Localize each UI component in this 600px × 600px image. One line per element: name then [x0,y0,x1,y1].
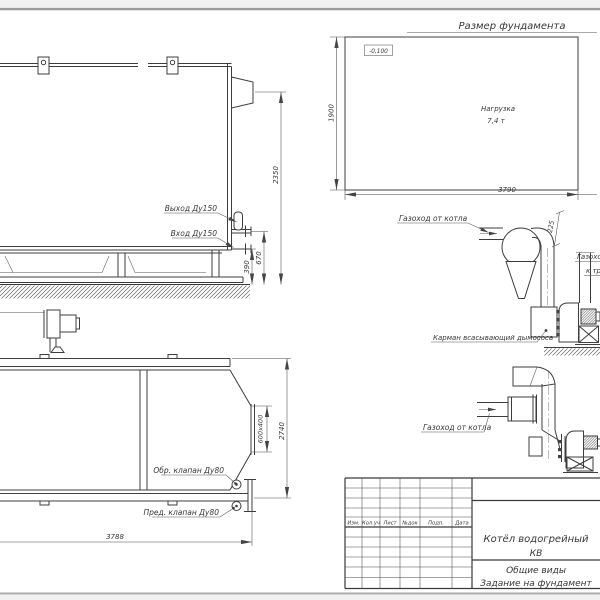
title-block: Изм. Кол.уч Лист №док Подп. Дата Котёл в… [345,478,600,589]
cyclone-volute [502,228,540,266]
fan-scroll [559,303,579,342]
dim-225: 225 [546,220,556,234]
col-koluch: Кол.уч [362,521,380,527]
dim-3788: 3788 [106,533,124,541]
water-connections [232,212,252,255]
duct-from-boiler-label: Газоход от котла [399,214,468,223]
support-frame [0,250,243,283]
lower-transition-box [508,395,537,424]
svg-text:-0,100: -0,100 [369,49,388,55]
dim-670: 670 [255,251,263,265]
doc-type-line1: Общие виды [506,566,566,576]
col-izm: Изм. [347,521,359,527]
motor-frame [579,326,599,343]
dim-3790: 3790 [498,186,516,194]
foundation-title: Размер фундамента [459,21,566,32]
lower-fan-unit [529,430,600,473]
boiler-drawing-svg: Выход Ду150 Вход Ду150 390 670 2350 Разм… [0,0,600,600]
ground [0,285,250,299]
plan-view-labels: Обр. клапан Ду80 Пред. клапан Ду80 [143,466,236,517]
motor [581,309,596,324]
outlet-valve [234,212,243,230]
foundation-plan: Размер фундамента -0,100 Нагрузка 7,4 т … [328,21,598,200]
flue-outlet-branch [232,77,254,108]
suction-pocket-label: Карман всасывающий дымососа [433,334,553,342]
lifting-lug [38,57,49,74]
boiler-body [0,64,253,251]
title-block-headers: Изм. Кол.уч Лист №док Подп. Дата [347,521,468,527]
load-value: 7,4 т [487,117,505,125]
col-podp: Подп. [428,521,444,527]
foundation-outline [345,37,578,190]
col-ndok: №док [401,521,418,527]
outlet-label: Выход Ду150 [165,204,218,213]
product-name-line1: Котёл водогрейный [484,534,589,545]
side-view-labels: Выход Ду150 Вход Ду150 [164,204,237,248]
safety-valve-label: Пред. клапан Ду80 [143,508,219,517]
lower-inlet-duct [477,403,508,417]
lifting-lug [167,57,178,74]
plan-view: Обр. клапан Ду80 Пред. клапан Ду80 3788 … [0,310,291,546]
upper-ground [544,348,600,356]
col-list: Лист [382,521,397,527]
frame-rails [0,355,248,506]
doc-type-line2: Задание на фундамент [480,579,592,589]
flue-scheme-lower: Газоход от котла [421,367,600,473]
boiler-roof [0,57,232,74]
dim-390: 390 [243,260,251,274]
side-view: Выход Ду150 Вход Ду150 390 670 2350 [0,57,286,299]
plan-view-dimensions: 3788 600x400 2740 [0,359,291,547]
inlet-label: Вход Ду150 [171,229,218,238]
dim-2740: 2740 [278,422,286,440]
product-name-line2: КВ [530,549,543,559]
col-data: Дата [454,521,468,527]
title-block-name: Котёл водогрейный КВ Общие виды Задание … [480,534,592,589]
duct-to-chimney-label-2: к трубе [586,267,600,275]
cyclone-cone [506,262,536,299]
flue-scheme-upper: Газоход от котла 225 Карман всасывающий … [397,211,600,356]
fan-scroll [566,431,584,468]
side-view-dimensions: 390 670 2350 [243,92,286,285]
dim-600x400: 600x400 [257,415,265,444]
load-label: Нагрузка [481,105,515,113]
dim-2350: 2350 [272,166,280,184]
outlet-flange [251,404,255,455]
duct-from-boiler-label: Газоход от котла [423,423,492,432]
dim-1900: 1900 [328,104,336,122]
duct-to-chimney-label-1: Газоход [577,253,600,261]
drawing-sheet: Выход Ду150 Вход Ду150 390 670 2350 Разм… [0,0,600,600]
burner-assembly [0,310,80,353]
motor [584,436,598,449]
check-valve-label: Обр. клапан Ду80 [153,466,224,475]
